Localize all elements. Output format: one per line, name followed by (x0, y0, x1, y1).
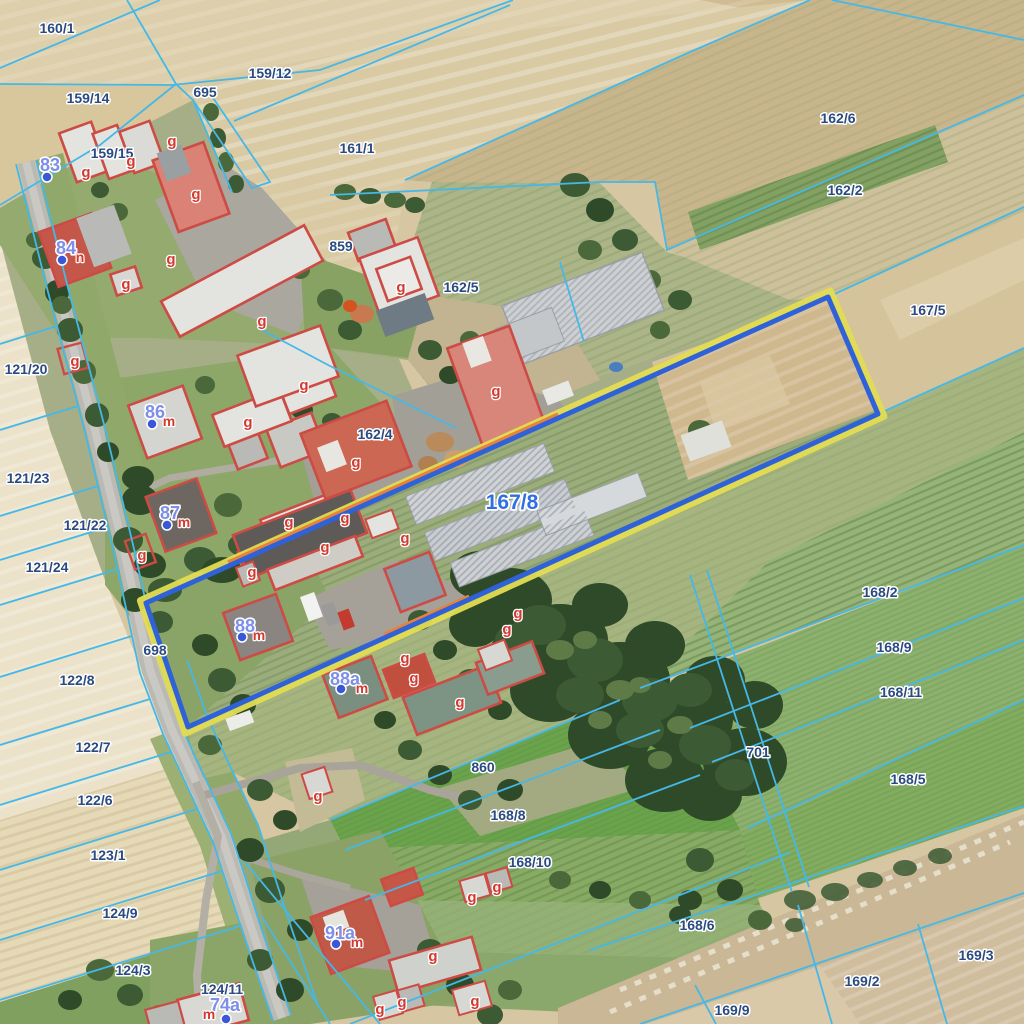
svg-text:g: g (400, 650, 409, 667)
svg-text:m: m (163, 413, 175, 429)
svg-text:698: 698 (143, 642, 167, 658)
svg-text:122/7: 122/7 (75, 739, 110, 755)
svg-text:860: 860 (471, 759, 495, 775)
svg-text:g: g (409, 670, 418, 687)
svg-text:162/6: 162/6 (820, 110, 855, 126)
svg-text:g: g (137, 547, 146, 564)
svg-text:g: g (70, 353, 79, 370)
svg-text:n: n (76, 249, 85, 265)
svg-text:84: 84 (56, 238, 76, 258)
svg-text:g: g (121, 276, 130, 293)
svg-text:159/12: 159/12 (249, 65, 292, 81)
svg-text:123/1: 123/1 (90, 847, 125, 863)
svg-text:162/4: 162/4 (357, 426, 392, 442)
svg-text:168/10: 168/10 (509, 854, 552, 870)
svg-text:g: g (126, 153, 135, 170)
svg-text:g: g (351, 454, 360, 471)
svg-text:g: g (247, 564, 256, 581)
svg-text:g: g (397, 994, 406, 1011)
svg-text:m: m (253, 627, 265, 643)
svg-text:167/5: 167/5 (910, 302, 945, 318)
svg-text:124/9: 124/9 (102, 905, 137, 921)
svg-text:168/6: 168/6 (679, 917, 714, 933)
svg-text:g: g (313, 788, 322, 805)
svg-text:169/9: 169/9 (714, 1002, 749, 1018)
svg-text:168/11: 168/11 (880, 684, 922, 700)
svg-text:g: g (513, 605, 522, 622)
svg-text:122/8: 122/8 (59, 672, 94, 688)
svg-text:83: 83 (40, 155, 60, 175)
svg-text:g: g (396, 279, 405, 296)
svg-text:g: g (284, 514, 293, 531)
svg-text:695: 695 (193, 84, 217, 100)
svg-text:m: m (351, 934, 363, 950)
svg-text:g: g (81, 164, 90, 181)
svg-text:g: g (492, 879, 501, 896)
svg-text:168/2: 168/2 (862, 584, 897, 600)
svg-text:g: g (467, 889, 476, 906)
svg-text:168/9: 168/9 (876, 639, 911, 655)
svg-text:m: m (203, 1006, 215, 1022)
svg-text:159/14: 159/14 (67, 90, 110, 106)
svg-text:168/5: 168/5 (890, 771, 925, 787)
svg-text:121/20: 121/20 (5, 361, 48, 377)
svg-text:g: g (340, 510, 349, 527)
svg-text:121/23: 121/23 (7, 470, 50, 486)
svg-text:121/22: 121/22 (64, 517, 107, 533)
svg-text:m: m (178, 514, 190, 530)
svg-text:g: g (502, 621, 511, 638)
svg-text:168/8: 168/8 (490, 807, 525, 823)
svg-text:g: g (299, 377, 308, 394)
svg-text:g: g (320, 539, 329, 556)
svg-text:124/3: 124/3 (115, 962, 150, 978)
svg-text:g: g (166, 251, 175, 268)
svg-text:g: g (491, 383, 500, 400)
svg-text:g: g (257, 313, 266, 330)
svg-text:m: m (356, 680, 368, 696)
svg-text:161/1: 161/1 (339, 140, 374, 156)
svg-text:g: g (455, 694, 464, 711)
svg-text:701: 701 (746, 744, 770, 760)
svg-text:121/24: 121/24 (26, 559, 69, 575)
svg-text:122/6: 122/6 (77, 792, 112, 808)
svg-text:167/8: 167/8 (486, 491, 539, 514)
svg-text:160/1: 160/1 (39, 20, 74, 36)
svg-text:169/3: 169/3 (958, 947, 993, 963)
svg-text:g: g (428, 948, 437, 965)
svg-text:g: g (400, 530, 409, 547)
svg-text:g: g (375, 1001, 384, 1018)
svg-text:g: g (167, 133, 176, 150)
svg-text:g: g (191, 186, 200, 203)
svg-text:g: g (243, 414, 252, 431)
svg-text:162/2: 162/2 (827, 182, 862, 198)
svg-text:162/5: 162/5 (443, 279, 478, 295)
svg-text:859: 859 (329, 238, 353, 254)
svg-text:g: g (470, 993, 479, 1010)
svg-text:169/2: 169/2 (844, 973, 879, 989)
